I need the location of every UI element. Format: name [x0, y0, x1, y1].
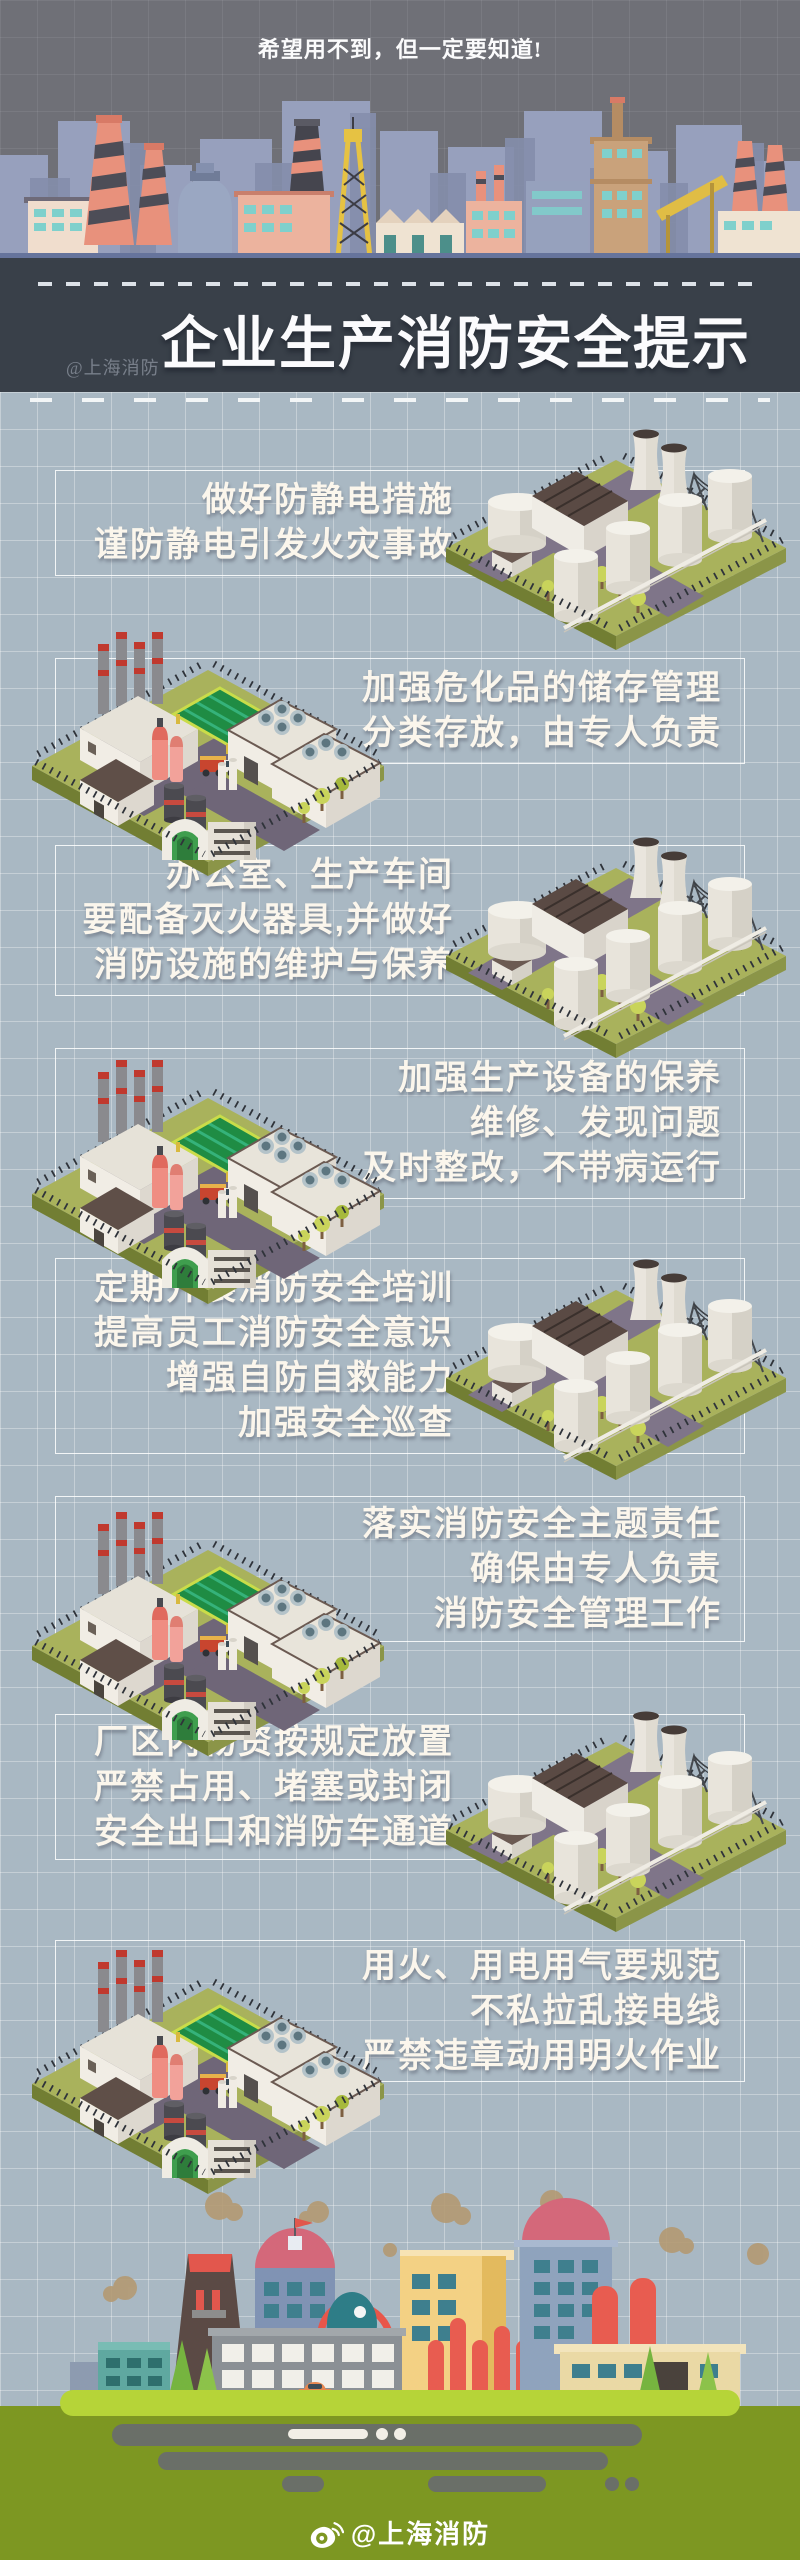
credit-text: @上海消防: [351, 2519, 490, 2549]
credit: @上海消防: [0, 2514, 800, 2551]
factory-complex-illustration: [22, 1926, 394, 2198]
watermark: @上海消防: [66, 354, 160, 380]
tip-line: 安全出口和消防车通道: [64, 1810, 454, 1855]
dashed-divider: [38, 282, 762, 286]
tank-farm-illustration: [436, 820, 796, 1065]
buildings: [70, 2198, 746, 2404]
city-skyline-illustration: [0, 83, 800, 258]
tip-line: 谨防静电引发火灾事故: [64, 523, 454, 568]
tip-line: 要配备灭火器具,并做好: [64, 898, 454, 943]
factory-complex-illustration: [22, 1036, 394, 1308]
tagline: 希望用不到，但一定要知道!: [0, 32, 800, 64]
platform: [60, 2390, 740, 2416]
tip-line: 加强安全巡查: [64, 1401, 454, 1446]
tank-farm-illustration: [436, 412, 796, 657]
factory-complex-illustration: [22, 608, 394, 880]
tank-farm-illustration: [436, 1694, 796, 1939]
tip-line: 严禁占用、堵塞或封闭: [64, 1765, 454, 1810]
hero-section: 希望用不到，但一定要知道!: [0, 0, 800, 258]
tank-farm-illustration: [436, 1242, 796, 1487]
tip-text-1: 做好防静电措施 谨防静电引发火灾事故: [64, 471, 454, 575]
weibo-icon: [310, 2520, 344, 2549]
tip-line: 消防设施的维护与保养: [64, 943, 454, 988]
dashed-divider-light: [30, 398, 770, 402]
tip-line: 提高员工消防安全意识: [64, 1311, 454, 1356]
tip-line: 做好防静电措施: [64, 478, 454, 523]
title-band: 企业生产消防安全提示 @上海消防: [0, 258, 800, 392]
tip-line: 增强自防自救能力: [64, 1356, 454, 1401]
flat-city-illustration: [0, 2190, 800, 2560]
factory-complex-illustration: [22, 1488, 394, 1760]
